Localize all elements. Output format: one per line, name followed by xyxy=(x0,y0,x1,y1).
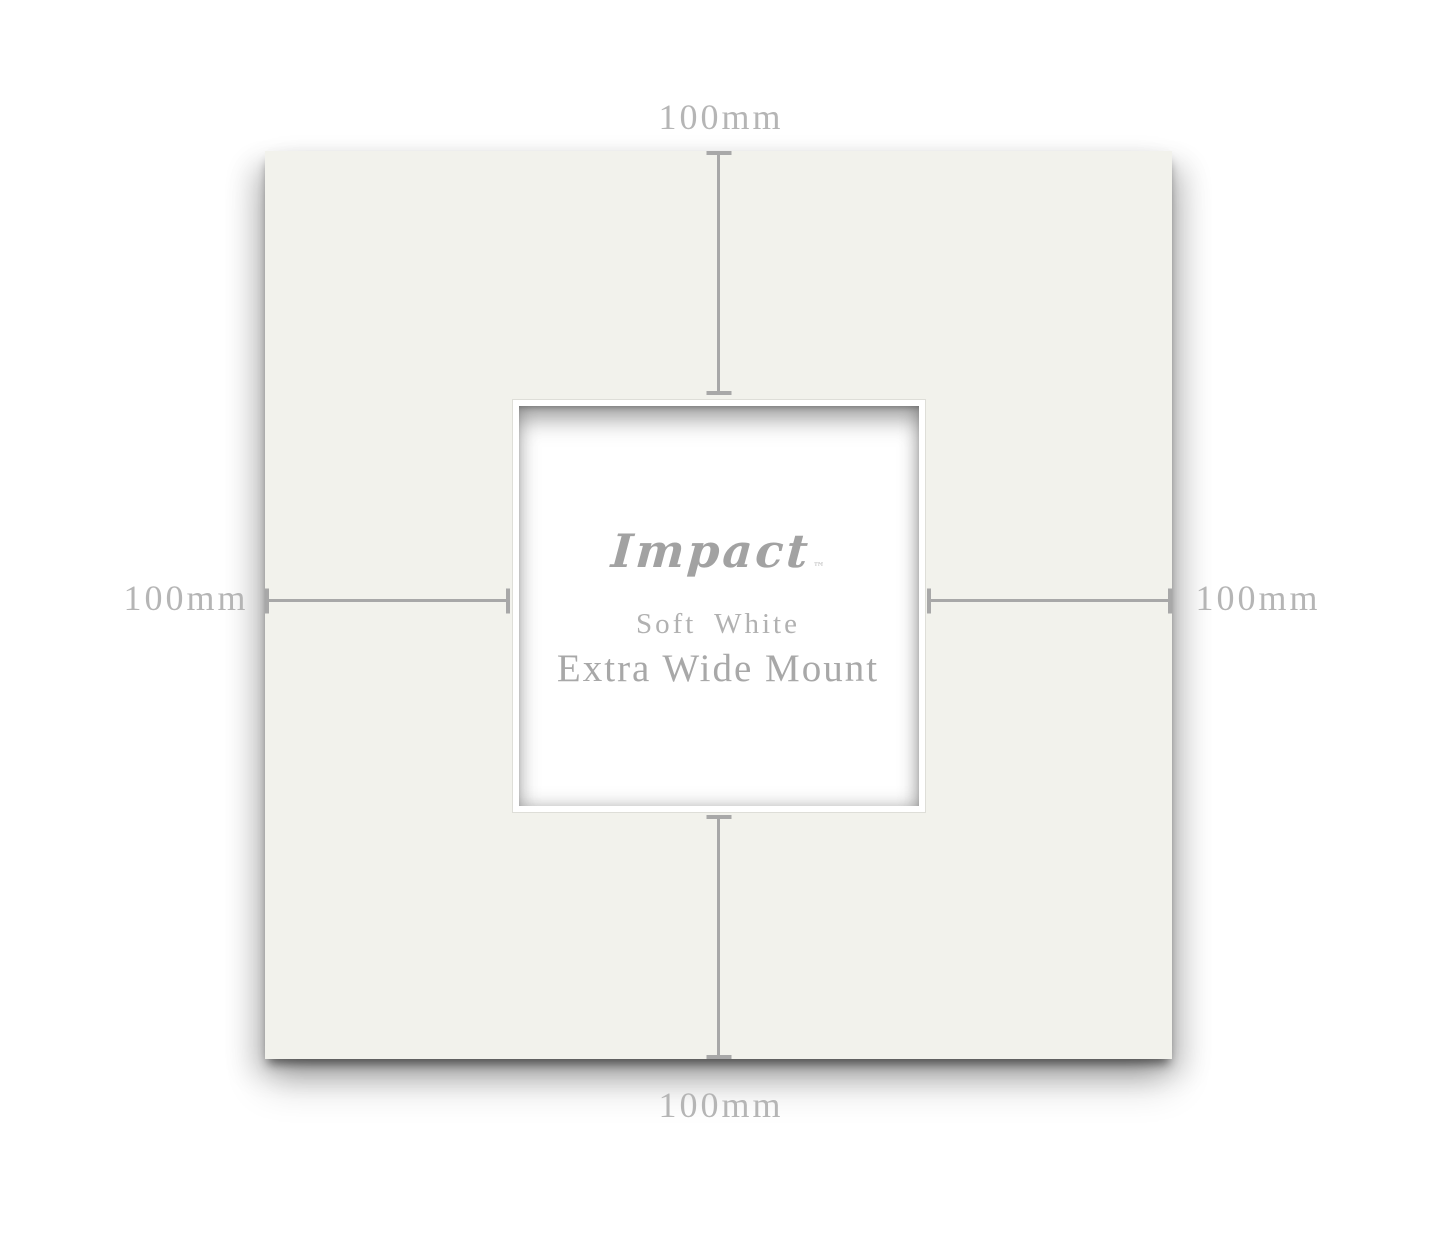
product-name: Extra Wide Mount xyxy=(557,646,879,692)
brand-logo-text: Impact xyxy=(609,524,812,578)
dimension-line-right-border xyxy=(927,599,1172,602)
dimension-label-left: 100mm xyxy=(123,577,248,619)
dimension-label-right: 100mm xyxy=(1195,577,1320,619)
dimension-line-bottom-border xyxy=(717,815,720,1059)
mount-color-name: Soft White xyxy=(557,606,879,642)
brand-logo: Impact™ xyxy=(554,522,881,596)
branding-block: Impact™ Soft White Extra Wide Mount xyxy=(557,522,879,692)
trademark-symbol: ™ xyxy=(812,560,825,574)
dimension-label-top: 100mm xyxy=(658,96,783,138)
product-image-canvas: Impact™ Soft White Extra Wide Mount 100m… xyxy=(0,0,1445,1236)
dimension-label-bottom: 100mm xyxy=(658,1084,783,1126)
dimension-line-left-border xyxy=(265,599,510,602)
dimension-line-top-border xyxy=(717,151,720,395)
